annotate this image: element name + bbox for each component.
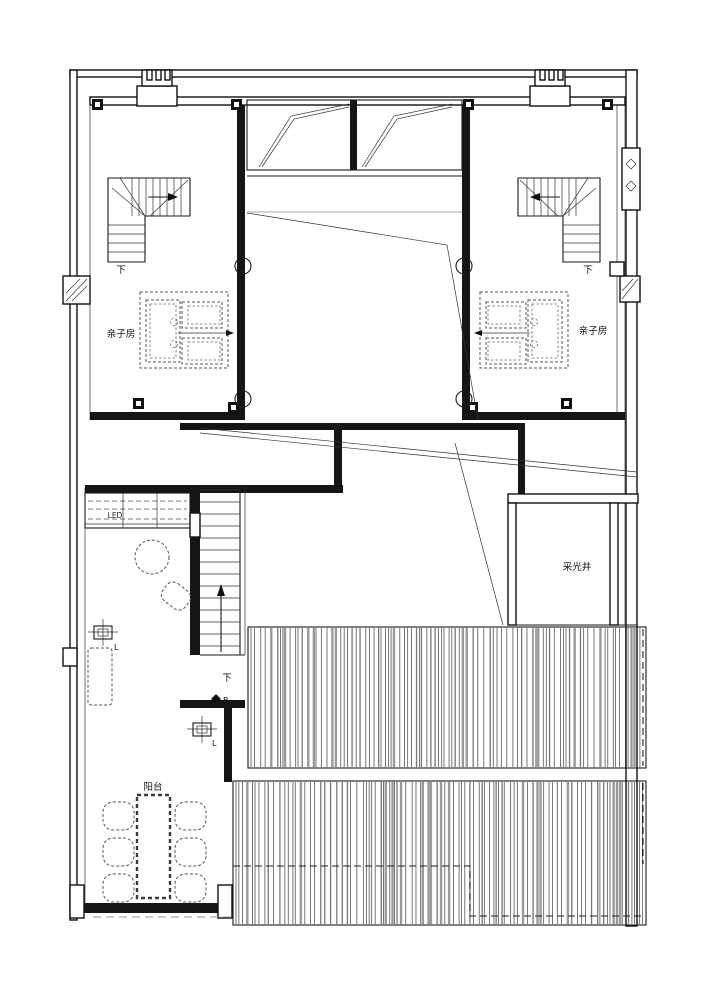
left-bedroom-stairs: 下 xyxy=(108,178,190,276)
stair-down-label-left: 下 xyxy=(116,265,126,276)
room-label-left: 亲子房 xyxy=(107,328,136,340)
round-table xyxy=(135,540,169,574)
light-label-2: L xyxy=(212,739,217,748)
light-fixture-2: L xyxy=(187,716,217,748)
right-bedroom-bed-group xyxy=(474,292,568,368)
stair-down-label-main: 下 xyxy=(222,673,232,684)
storage-cabinet xyxy=(88,648,112,705)
direction-arrow-icon xyxy=(474,330,530,336)
direction-arrow-icon xyxy=(217,584,225,652)
lounge-chair xyxy=(158,579,194,614)
right-bedroom-stairs: 下 xyxy=(518,178,600,276)
chimney-right xyxy=(530,70,570,106)
light-well: 采光井 xyxy=(508,494,638,625)
floor-plan-drawing: 下 下 xyxy=(0,0,707,1000)
floor-plan-page: 下 下 xyxy=(0,0,707,1000)
chimney-left xyxy=(137,70,177,106)
balcony-label: 阳台 xyxy=(143,781,162,793)
stair-down-label-right: 下 xyxy=(583,265,593,276)
light-fixture-1: L xyxy=(88,619,119,652)
skylight-glass-panels xyxy=(247,100,462,176)
left-bedroom-bed-group xyxy=(140,292,234,368)
main-stairs: 下 xyxy=(200,487,245,684)
room-label-right: 亲子房 xyxy=(579,325,608,337)
light-label-1: L xyxy=(114,643,119,652)
led-strip: LED xyxy=(85,493,190,528)
marker-b-label: B xyxy=(223,696,229,705)
roof-hatch-band-1 xyxy=(251,628,640,767)
direction-arrow-icon xyxy=(178,330,234,336)
light-well-label: 采光井 xyxy=(563,561,592,573)
roof-hatch-band-2 xyxy=(236,782,642,924)
led-label: LED xyxy=(108,511,123,520)
balcony-furniture: 阳台 xyxy=(103,781,206,902)
